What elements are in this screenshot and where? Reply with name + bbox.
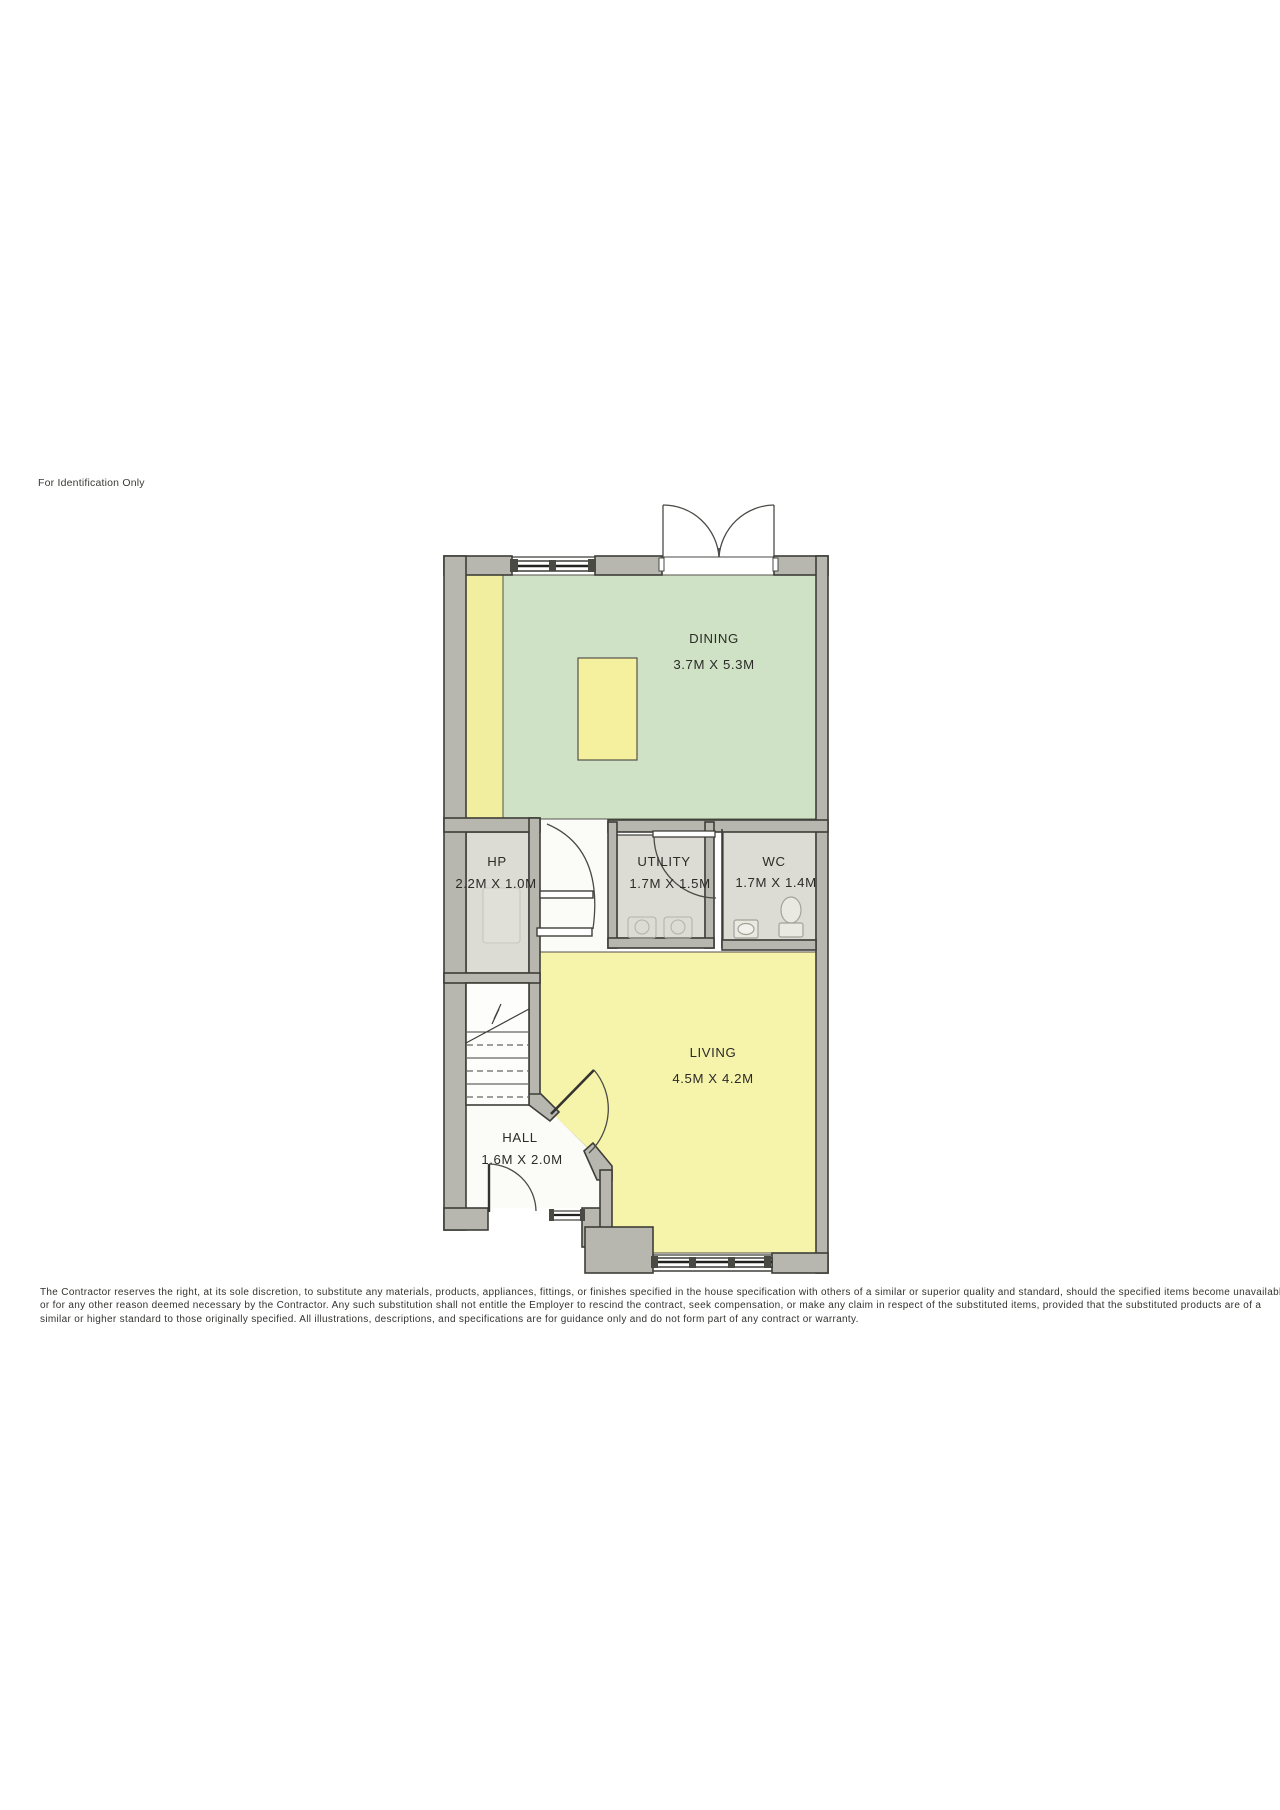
wall-under-dining-right [608, 820, 828, 832]
disclaimer-line: The Contractor reserves the right, at it… [40, 1286, 1280, 1299]
wc-dims: 1.7M X 1.4M [735, 875, 816, 890]
door-leaf [653, 831, 715, 837]
dining-label: DINING [689, 631, 739, 646]
living-label: LIVING [690, 1045, 737, 1060]
wc-label: WC [762, 854, 785, 869]
wall-left [444, 556, 466, 1230]
wall-hp-bottom [444, 973, 540, 983]
window-tick [549, 560, 556, 571]
door-swing-arc [663, 505, 719, 557]
utility-dims: 1.7M X 1.5M [629, 876, 710, 891]
floorplan-drawing: DINING 3.7M X 5.3M HP 2.2M X 1.0M UTILIT… [0, 0, 1280, 1810]
wall-living-west [600, 1170, 612, 1230]
hall-dims: 1.6M X 2.0M [481, 1152, 562, 1167]
hp-label: HP [487, 854, 507, 869]
wall-wc-bottom [722, 940, 816, 950]
utility-label: UTILITY [637, 854, 690, 869]
kitchen-strip-floor [466, 575, 503, 819]
stairs [466, 983, 529, 1105]
disclaimer-line: similar or higher standard to those orig… [40, 1313, 1280, 1326]
wall-hall-bottom-left [444, 1208, 488, 1230]
window-tick [728, 1257, 735, 1268]
hp-tank-icon [483, 888, 520, 943]
wall-hp-stairs-spine [529, 818, 540, 1105]
window-top [510, 557, 596, 572]
window-cap [510, 559, 518, 572]
wall-under-dining-left [444, 818, 540, 832]
hall-label: HALL [502, 1130, 537, 1145]
wall-utility-left [608, 822, 617, 948]
wall-right [816, 556, 828, 1273]
door-swing-arc [719, 505, 774, 557]
dining-room-floor [503, 575, 816, 819]
sink-icon [734, 920, 758, 938]
door-leaf [537, 928, 592, 936]
window-cap [651, 1256, 658, 1268]
door-leaf [540, 891, 593, 898]
window-bottom [651, 1255, 772, 1268]
window-cap [764, 1256, 771, 1268]
wall-top-mid [595, 556, 662, 575]
contractor-disclaimer: The Contractor reserves the right, at it… [40, 1286, 1280, 1326]
dining-table [578, 658, 637, 760]
scanned-floorplan-page: For Identification Only [0, 0, 1280, 1810]
disclaimer-line: or for any other reason deemed necessary… [40, 1299, 1280, 1312]
wall-living-bottom-corner [585, 1227, 653, 1273]
hp-dims: 2.2M X 1.0M [455, 876, 536, 891]
window-cap [588, 559, 596, 572]
dining-dims: 3.7M X 5.3M [673, 657, 754, 672]
french-doors [659, 505, 778, 571]
wall-gap-strip [714, 822, 722, 948]
wall-utility-bottom [608, 938, 714, 948]
wall-living-bottom-right [772, 1253, 828, 1273]
window-tick [689, 1257, 696, 1268]
living-dims: 4.5M X 4.2M [672, 1071, 753, 1086]
toilet-icon [779, 897, 803, 937]
